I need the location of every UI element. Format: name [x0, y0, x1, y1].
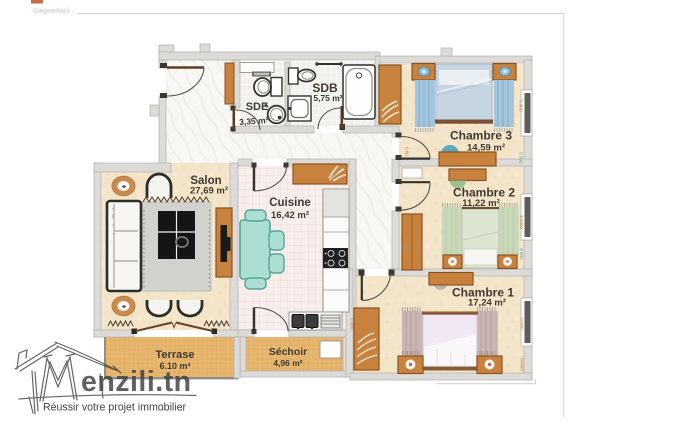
svg-text:SDE: SDE: [246, 101, 269, 113]
svg-text:Chambre 3: Chambre 3: [450, 129, 512, 143]
svg-text:Gagnetoci: Gagnetoci: [33, 6, 70, 15]
svg-text:0.000: 0.000: [519, 100, 524, 112]
svg-text:Séchoir: Séchoir: [269, 346, 308, 358]
svg-text:enzili.tn: enzili.tn: [81, 366, 192, 398]
svg-text:0.000: 0.000: [350, 318, 355, 330]
svg-text:Cuisine: Cuisine: [269, 197, 311, 209]
svg-text:4,96 m²: 4,96 m²: [273, 358, 302, 368]
svg-text:...: ...: [70, 11, 75, 17]
svg-text:0.00: 0.00: [404, 242, 409, 251]
svg-text:27,69 m²: 27,69 m²: [190, 186, 228, 197]
svg-text:16,42 m²: 16,42 m²: [271, 210, 309, 221]
svg-text:Terrase: Terrase: [156, 349, 195, 361]
svg-text:1.0000: 1.0000: [519, 215, 524, 229]
svg-text:0.00: 0.00: [405, 147, 410, 156]
svg-text:00000: 00000: [520, 358, 525, 371]
svg-text:Réussir votre projet immobilie: Réussir votre projet immobilier: [43, 402, 187, 414]
svg-text:17,24 m²: 17,24 m²: [468, 298, 506, 309]
svg-text:3,35 m²: 3,35 m²: [239, 115, 269, 127]
svg-text:0.000: 0.000: [520, 318, 525, 330]
svg-text:14,59 m²: 14,59 m²: [467, 143, 505, 154]
svg-text:0.000: 0.000: [519, 152, 524, 164]
svg-text:11,22 m²: 11,22 m²: [462, 198, 500, 209]
svg-text:5,75 m²: 5,75 m²: [313, 93, 342, 103]
svg-text:0.000: 0.000: [519, 248, 524, 260]
